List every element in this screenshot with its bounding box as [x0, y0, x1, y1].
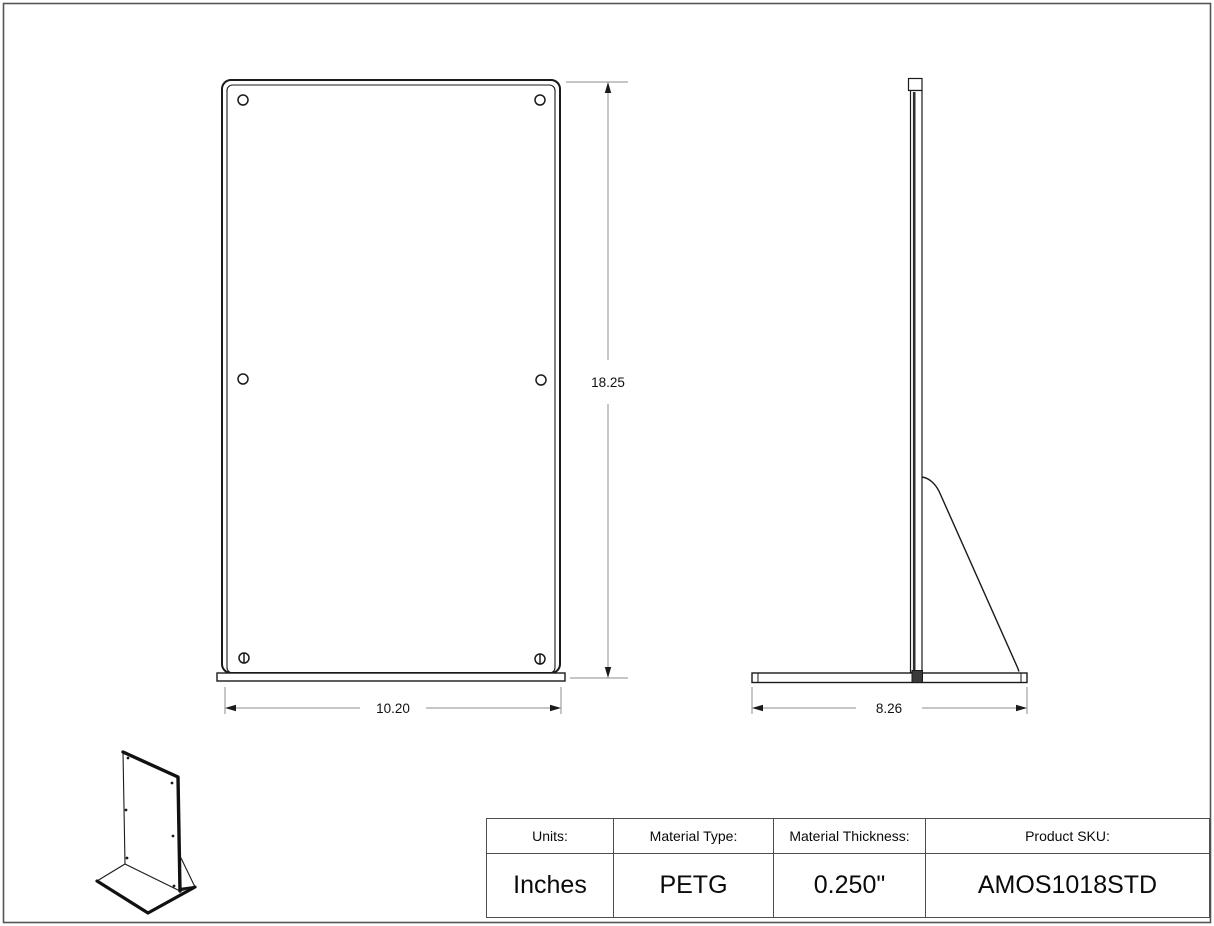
page-border [4, 4, 1211, 923]
side-base-strip [752, 673, 1027, 683]
side-panel-edge [911, 91, 923, 673]
side-view [752, 79, 1027, 683]
arrow-left-icon [752, 705, 763, 711]
material-type-header: Material Type: [614, 819, 774, 854]
technical-drawing-canvas: 18.25 10.20 [0, 0, 1214, 926]
iso-panel-thick-edges [123, 752, 180, 891]
arrow-up-icon [605, 82, 611, 93]
width-dimension: 10.20 [225, 687, 561, 716]
spec-table-value-row: Inches PETG 0.250" AMOS1018STD [487, 854, 1210, 918]
spec-table-header-row: Units: Material Type: Material Thickness… [487, 819, 1210, 854]
front-panel-outer-outline [222, 80, 560, 673]
drawing-sheet: 18.25 10.20 [0, 0, 1214, 926]
units-value: Inches [487, 854, 614, 918]
front-base-strip [217, 673, 565, 681]
base-dimension-label: 8.26 [876, 701, 902, 716]
spec-table: Units: Material Type: Material Thickness… [486, 818, 1210, 918]
panel-base-slot [912, 671, 923, 683]
material-type-value: PETG [614, 854, 774, 918]
arrow-left-icon [225, 705, 236, 711]
height-dimension-label: 18.25 [591, 375, 625, 390]
units-header: Units: [487, 819, 614, 854]
arrow-right-icon [1016, 705, 1027, 711]
width-dimension-label: 10.20 [376, 701, 410, 716]
arrow-right-icon [550, 705, 561, 711]
iso-gusset-edge [181, 858, 195, 887]
arrow-down-icon [605, 667, 611, 678]
side-panel-top-cap [909, 79, 923, 91]
product-sku-header: Product SKU: [926, 819, 1210, 854]
height-dimension: 18.25 [566, 82, 628, 678]
product-sku-value: AMOS1018STD [926, 854, 1210, 918]
material-thickness-header: Material Thickness: [774, 819, 926, 854]
support-gusset-outline [922, 477, 1019, 672]
front-view [217, 80, 565, 681]
material-thickness-value: 0.250" [774, 854, 926, 918]
base-dimension: 8.26 [752, 687, 1027, 716]
isometric-view [97, 752, 195, 913]
